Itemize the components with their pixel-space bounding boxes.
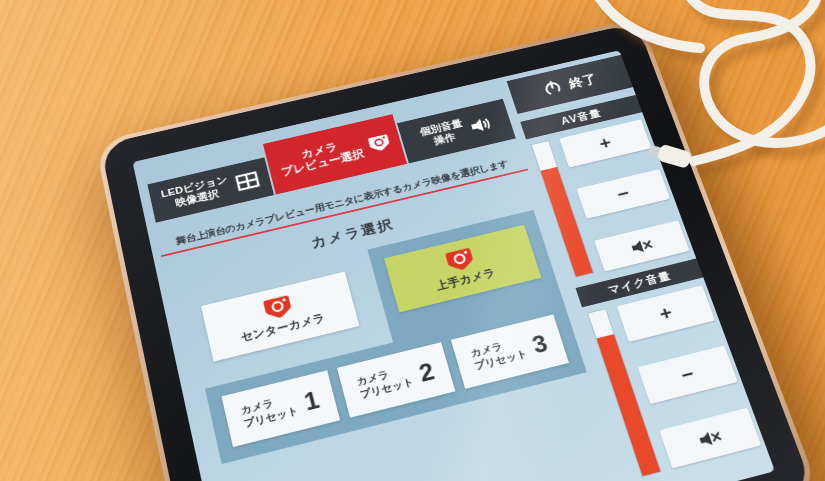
power-icon	[541, 78, 564, 98]
av-volume-down-button[interactable]: −	[577, 169, 671, 219]
muted-speaker-icon	[696, 427, 723, 449]
mic-mute-button[interactable]	[659, 408, 761, 469]
exit-button-label: 終了	[567, 71, 599, 92]
grid-icon	[234, 170, 261, 192]
muted-speaker-icon	[629, 236, 655, 255]
preset-number: 2	[416, 357, 437, 387]
camera-icon	[367, 133, 392, 154]
center-camera-button[interactable]: センターカメラ	[201, 272, 359, 362]
mic-volume-down-button[interactable]: −	[638, 345, 738, 404]
tab-individual-volume-control[interactable]: 個別音量 操作	[397, 99, 516, 164]
preset-number: 3	[529, 329, 551, 358]
speaker-icon	[468, 116, 493, 135]
tab-led-vision-video-select[interactable]: LEDビジョン 映像選択	[147, 157, 274, 222]
preset-number: 1	[301, 385, 322, 415]
tab-camera-preview-select[interactable]: カメラ プレビュー選択	[263, 114, 407, 194]
mic-volume-fill	[597, 334, 661, 476]
